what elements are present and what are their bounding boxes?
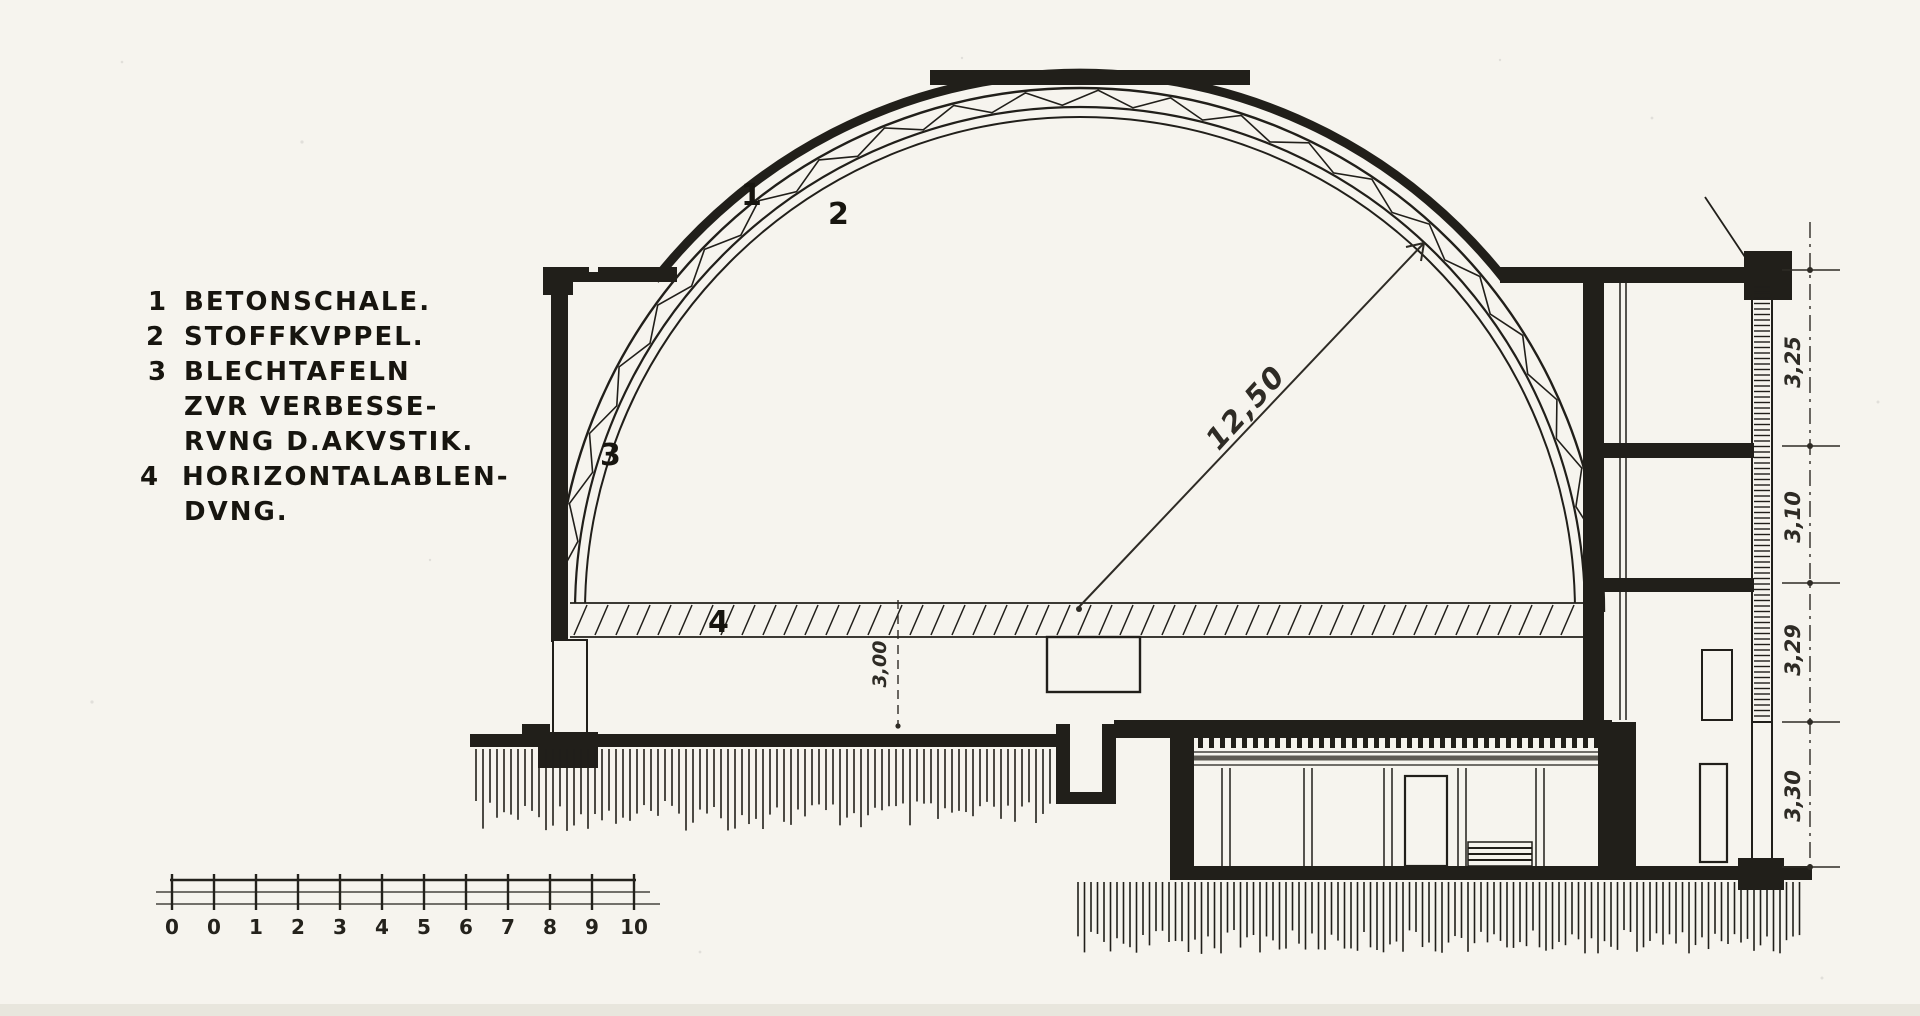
legend-item-number: 3: [148, 357, 168, 387]
legend-item-label: ZVR VERBESSE-: [184, 392, 438, 422]
lower-door: [1700, 764, 1727, 862]
legend-item-number: 4: [140, 462, 160, 492]
central-opening-box: [1047, 637, 1140, 692]
outer-wall-footing: [1738, 858, 1784, 890]
roof-stay-line: [1705, 197, 1749, 263]
planetarium-section-drawing: 1 BETONSCHALE. 2 STOFFKVPPEL. 3 BLECHTAF…: [0, 0, 1920, 1016]
legend-item-label: HORIZONTALABLEN-: [182, 462, 510, 492]
legend-item-label: DVNG.: [184, 497, 289, 527]
interior-partition-lines: [1620, 283, 1626, 720]
dome-section: [556, 70, 1604, 612]
basement-left-wall: [1170, 738, 1194, 868]
basement-radiator: [1468, 842, 1532, 866]
terrace-curb: [522, 724, 550, 747]
shell-inner-edge-arc: [556, 88, 1604, 612]
scale-tick-label: 8: [543, 915, 557, 939]
scale-tick-label: 0: [165, 915, 179, 939]
projector-pit: [1056, 724, 1116, 804]
floor-height-label: 3,25: [1781, 336, 1805, 388]
brick-hatch: [1754, 287, 1770, 716]
roof-notch: [589, 264, 598, 272]
center-height-label: 3,00: [869, 641, 891, 688]
ceiling-dentils: [1198, 738, 1599, 748]
height-dimension-dot: [895, 723, 900, 728]
callout-metal-panels: 3: [600, 438, 621, 473]
scale-tick-label: 6: [459, 915, 473, 939]
basement-ceiling-slab: [1114, 720, 1612, 738]
right-inner-wall-basement: [1598, 722, 1636, 878]
callout-numbers: 1 2 3 4: [600, 178, 849, 640]
scale-tick-label: 9: [585, 915, 599, 939]
callout-horizontal-screen: 4: [708, 605, 729, 640]
scale-tick-label: 4: [375, 915, 389, 939]
legend-item-label: RVNG D.AKVSTIK.: [184, 427, 474, 457]
left-wall: [551, 270, 568, 642]
left-lower-wall: [553, 640, 587, 738]
floor-height-label: 3,29: [1781, 624, 1805, 676]
floor-slab-2: [1604, 578, 1754, 592]
fabric-dome-outer-line: [575, 107, 1585, 612]
right-inner-wall: [1583, 272, 1604, 722]
scale-tick-label: 1: [249, 915, 263, 939]
left-wall-structure: [538, 264, 677, 768]
basement-door: [1405, 776, 1447, 866]
ground-hatch-right: [1078, 882, 1800, 954]
scale-tick-label: 0: [207, 915, 221, 939]
legend-item-label: BETONSCHALE.: [184, 287, 431, 317]
floor-height-label: 3,10: [1781, 491, 1805, 543]
legend-item-number: 2: [146, 322, 166, 352]
legend: 1 BETONSCHALE. 2 STOFFKVPPEL. 3 BLECHTAF…: [140, 287, 510, 527]
scale-tick-label: 7: [501, 915, 515, 939]
callout-fabric-dome: 2: [828, 197, 849, 232]
pit-right-wall: [1102, 724, 1116, 802]
legend-item-label: BLECHTAFELN: [184, 357, 411, 387]
floor-slab-1: [1604, 443, 1754, 458]
scale-tick-label: 10: [620, 915, 648, 939]
truss-webbing: [559, 90, 1597, 576]
scanned-drawing-page: 1 BETONSCHALE. 2 STOFFKVPPEL. 3 BLECHTAF…: [0, 0, 1920, 1016]
legend-item-number: 1: [148, 287, 168, 317]
outer-wall-basement: [1752, 722, 1772, 862]
pit-floor: [1056, 792, 1116, 804]
scale-bar: 0012345678910: [156, 874, 660, 939]
scale-tick-label: 5: [417, 915, 431, 939]
radius-origin-dot: [1076, 606, 1082, 612]
fabric-dome-inner-line: [585, 117, 1575, 612]
scale-tick-label: 2: [291, 915, 305, 939]
concrete-shell-arc: [655, 73, 1505, 280]
right-dimension-chain: 3,25 3,10 3,29 3,30: [1781, 222, 1840, 870]
scan-edge-shadow: [0, 1004, 1920, 1016]
radius-dimension-label: 12,50: [1199, 358, 1293, 456]
legend-item-label: STOFFKVPPEL.: [184, 322, 425, 352]
floor-height-label: 3,30: [1781, 770, 1805, 822]
callout-shell: 1: [741, 178, 762, 213]
left-terrace-slab: [470, 734, 1062, 747]
basement-floor-slab: [1170, 866, 1812, 880]
scale-tick-label: 3: [333, 915, 347, 939]
apex-platform: [930, 70, 1250, 85]
radius-dimension: 12,50: [1076, 243, 1424, 612]
upper-door: [1702, 650, 1732, 720]
pit-left-wall: [1056, 724, 1070, 802]
